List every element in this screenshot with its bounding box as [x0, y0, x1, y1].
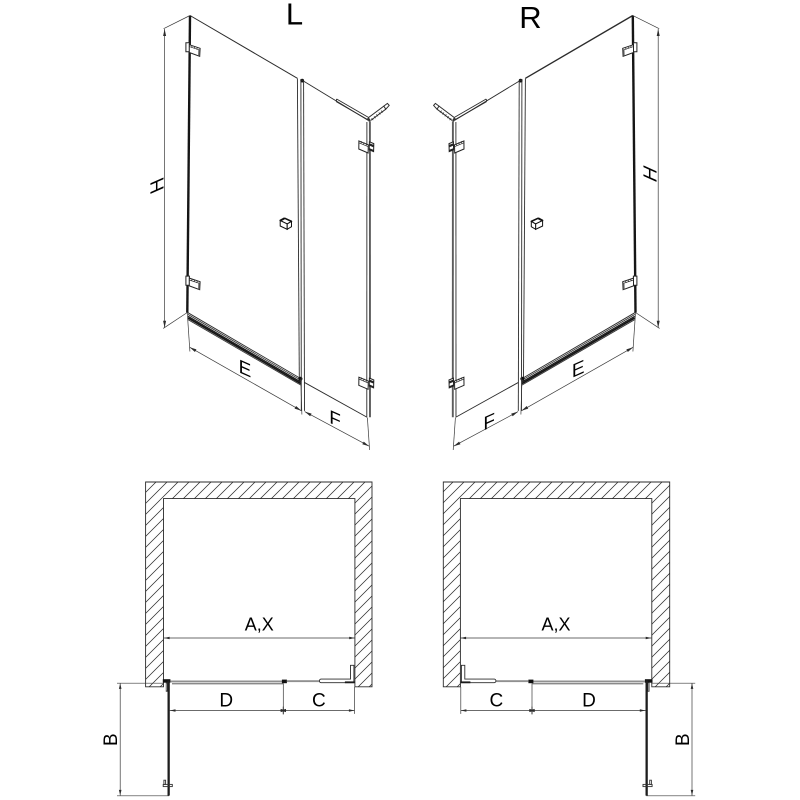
svg-text:B: B — [101, 733, 122, 746]
svg-text:B: B — [673, 733, 694, 746]
svg-text:A,X: A,X — [541, 615, 570, 635]
svg-text:R: R — [519, 0, 541, 35]
svg-text:C: C — [490, 691, 504, 712]
svg-text:C: C — [312, 691, 326, 712]
svg-text:A,X: A,X — [245, 615, 274, 635]
svg-text:D: D — [219, 691, 233, 712]
svg-text:L: L — [286, 0, 303, 31]
svg-text:D: D — [582, 691, 596, 712]
